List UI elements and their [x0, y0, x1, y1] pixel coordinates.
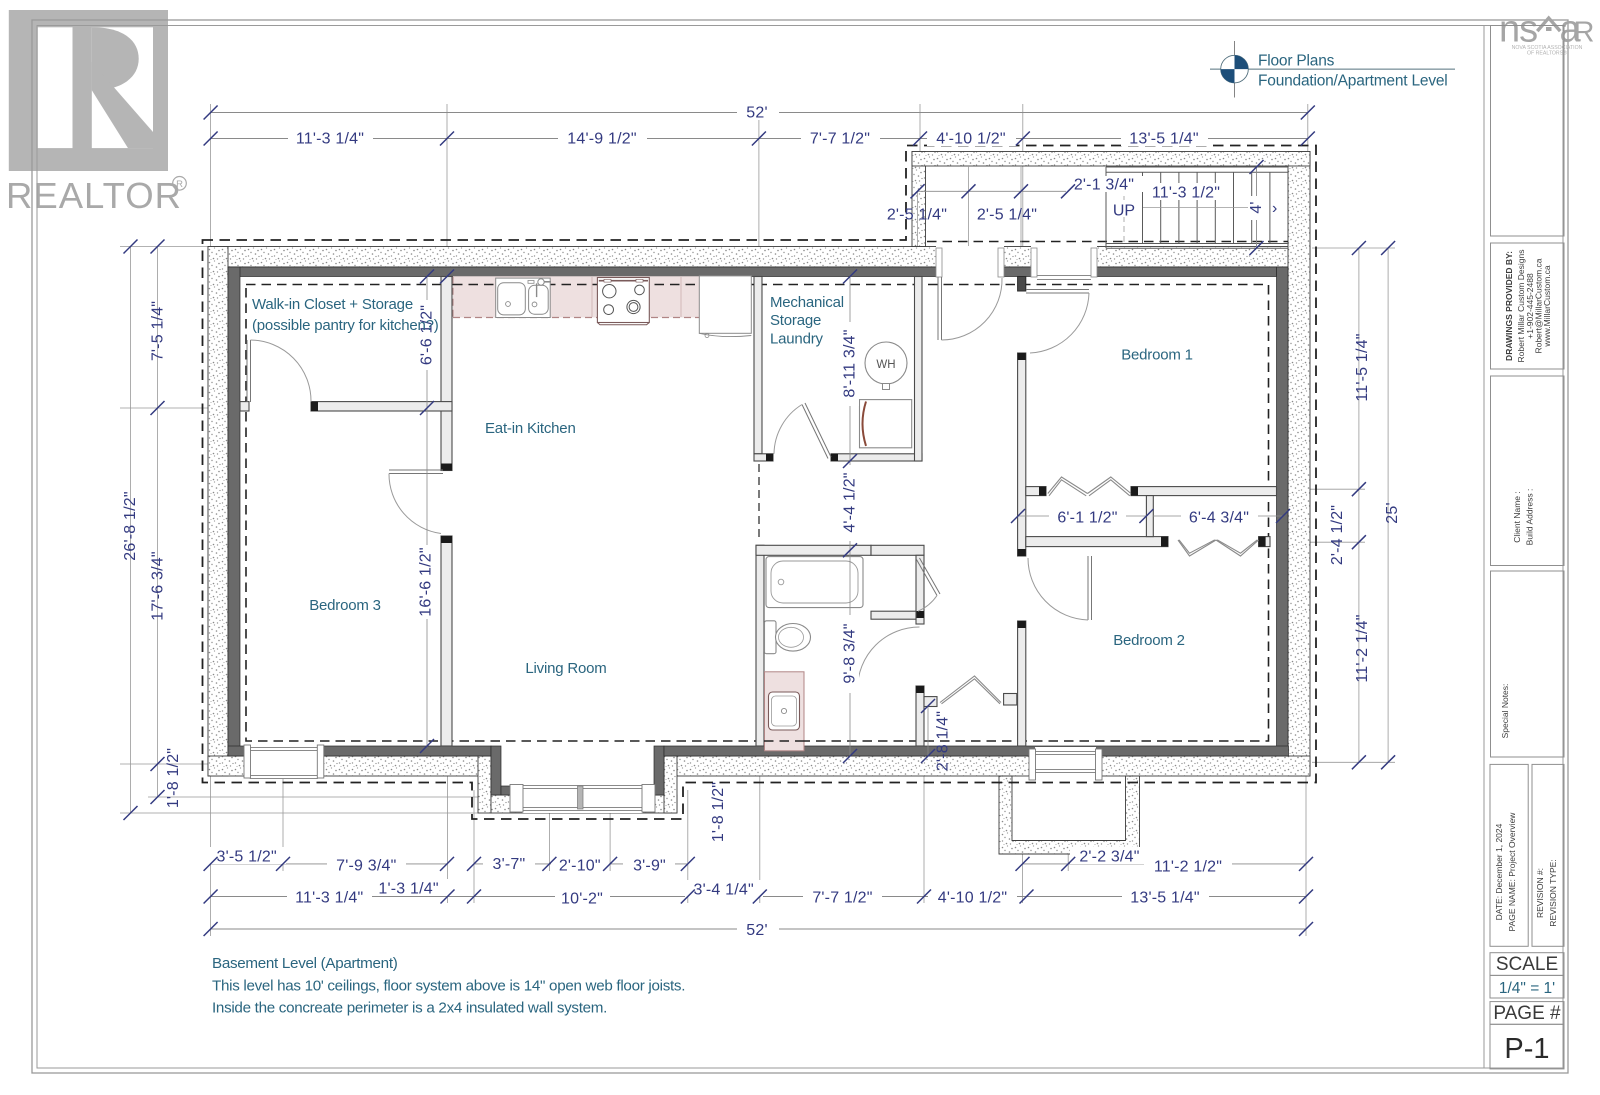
svg-text:Floor Plans: Floor Plans [1258, 53, 1335, 70]
svg-text:›: › [1272, 200, 1278, 217]
svg-text:2'-10": 2'-10" [559, 858, 601, 875]
svg-text:Inside the concreate perimeter: Inside the concreate perimeter is a 2x4 … [212, 1000, 607, 1017]
svg-text:1/4" = 1': 1/4" = 1' [1499, 980, 1555, 997]
svg-text:4': 4' [1248, 201, 1265, 213]
svg-text:6'-4 3/4": 6'-4 3/4" [1189, 510, 1249, 527]
svg-text:11'-2 1/2": 11'-2 1/2" [1154, 859, 1222, 876]
svg-text:Bedroom 3: Bedroom 3 [309, 597, 381, 614]
svg-text:9'-8 3/4": 9'-8 3/4" [842, 623, 859, 683]
svg-text:7'-7 1/2": 7'-7 1/2" [810, 131, 870, 148]
svg-text:www.MillarCustom.ca: www.MillarCustom.ca [1542, 265, 1552, 348]
svg-text:Eat-in Kitchen: Eat-in Kitchen [485, 420, 576, 437]
svg-text:11'-3 1/4": 11'-3 1/4" [295, 890, 363, 907]
svg-text:4'-10 1/2": 4'-10 1/2" [936, 131, 1005, 148]
svg-text:7'-7 1/2": 7'-7 1/2" [812, 890, 872, 907]
svg-text:1'-3 1/4": 1'-3 1/4" [378, 881, 438, 898]
svg-text:8'-11 3/4": 8'-11 3/4" [842, 329, 859, 397]
svg-text:UP: UP [1113, 203, 1135, 220]
svg-text:Mechanical: Mechanical [770, 294, 844, 311]
svg-text:WH: WH [876, 359, 895, 371]
svg-text:4'-10 1/2": 4'-10 1/2" [938, 890, 1007, 907]
svg-text:3'-7": 3'-7" [492, 856, 525, 873]
svg-text:Build Address :: Build Address : [1525, 489, 1535, 546]
svg-text:1'-8 1/2": 1'-8 1/2" [165, 748, 182, 808]
svg-text:REVISION TYPE:: REVISION TYPE: [1548, 859, 1558, 926]
svg-text:Storage: Storage [770, 312, 821, 329]
svg-text:This level has 10' ceilings, f: This level has 10' ceilings, floor syste… [212, 978, 685, 995]
svg-text:14'-9 1/2": 14'-9 1/2" [567, 131, 636, 148]
svg-text:11'-5 1/4": 11'-5 1/4" [1354, 333, 1371, 401]
svg-text:3'-9": 3'-9" [633, 858, 666, 875]
svg-text:P-1: P-1 [1504, 1033, 1549, 1065]
svg-text:52': 52' [746, 922, 767, 939]
svg-text:2'-1 3/4": 2'-1 3/4" [1074, 177, 1134, 194]
svg-text:DATE: December 1, 2024: DATE: December 1, 2024 [1494, 823, 1504, 920]
svg-text:11'-3 1/2": 11'-3 1/2" [1152, 185, 1220, 202]
svg-text:Laundry: Laundry [770, 331, 824, 348]
svg-text:6'-6 1/2": 6'-6 1/2" [419, 305, 436, 365]
svg-text:10'-2": 10'-2" [561, 891, 603, 908]
svg-text:2'-4 1/2": 2'-4 1/2" [1329, 505, 1346, 565]
svg-text:PAGE #: PAGE # [1493, 1003, 1561, 1024]
svg-text:SCALE: SCALE [1496, 954, 1558, 975]
svg-text:2'-5 1/4": 2'-5 1/4" [887, 207, 947, 224]
svg-text:Bedroom 1: Bedroom 1 [1121, 347, 1193, 364]
svg-text:7'-5 1/4": 7'-5 1/4" [150, 301, 167, 361]
svg-text:6'-1 1/2": 6'-1 1/2" [1057, 510, 1117, 527]
svg-text:Basement Level (Apartment): Basement Level (Apartment) [212, 955, 398, 972]
svg-text:OF REALTORS®: OF REALTORS® [1527, 49, 1567, 56]
svg-text:Special Notes:: Special Notes: [1500, 684, 1510, 739]
svg-text:(possible pantry for kitchen?): (possible pantry for kitchen?) [252, 317, 439, 334]
svg-text:Bedroom 2: Bedroom 2 [1113, 632, 1185, 649]
svg-text:11'-2 1/4": 11'-2 1/4" [1354, 614, 1371, 682]
svg-text:3'-5 1/2": 3'-5 1/2" [217, 849, 277, 866]
svg-text:2'-2 3/4": 2'-2 3/4" [1079, 849, 1139, 866]
svg-text:R: R [176, 179, 183, 190]
svg-text:Walk-in Closet + Storage: Walk-in Closet + Storage [252, 296, 413, 313]
svg-text:3'-4 1/4": 3'-4 1/4" [694, 882, 754, 899]
svg-text:PAGE NAME: Project Overview: PAGE NAME: Project Overview [1507, 812, 1517, 932]
svg-text:Client Name :: Client Name : [1512, 491, 1522, 543]
svg-text:2'-8 1/4": 2'-8 1/4" [935, 711, 952, 771]
svg-text:REVISION #:: REVISION #: [1535, 868, 1545, 918]
svg-text:16'-6 1/2": 16'-6 1/2" [418, 547, 435, 616]
svg-text:DRAWINGS PROVIDED BY:: DRAWINGS PROVIDED BY: [1504, 251, 1514, 361]
svg-text:2'-5 1/4": 2'-5 1/4" [977, 207, 1037, 224]
svg-text:17'-6 3/4": 17'-6 3/4" [150, 551, 167, 620]
svg-text:26'-8 1/2": 26'-8 1/2" [122, 491, 139, 560]
svg-text:13'-5 1/4": 13'-5 1/4" [1129, 131, 1198, 148]
svg-text:Living Room: Living Room [525, 660, 606, 677]
svg-text:1'-8 1/2": 1'-8 1/2" [710, 782, 727, 842]
svg-text:Foundation/Apartment Level: Foundation/Apartment Level [1258, 73, 1448, 90]
svg-text:52': 52' [746, 105, 767, 122]
svg-text:7'-9 3/4": 7'-9 3/4" [336, 858, 396, 875]
svg-text:25': 25' [1384, 502, 1401, 523]
svg-text:11'-3 1/4": 11'-3 1/4" [296, 131, 364, 148]
svg-text:13'-5 1/4": 13'-5 1/4" [1130, 890, 1199, 907]
svg-text:4'-4 1/2": 4'-4 1/2" [842, 472, 859, 532]
